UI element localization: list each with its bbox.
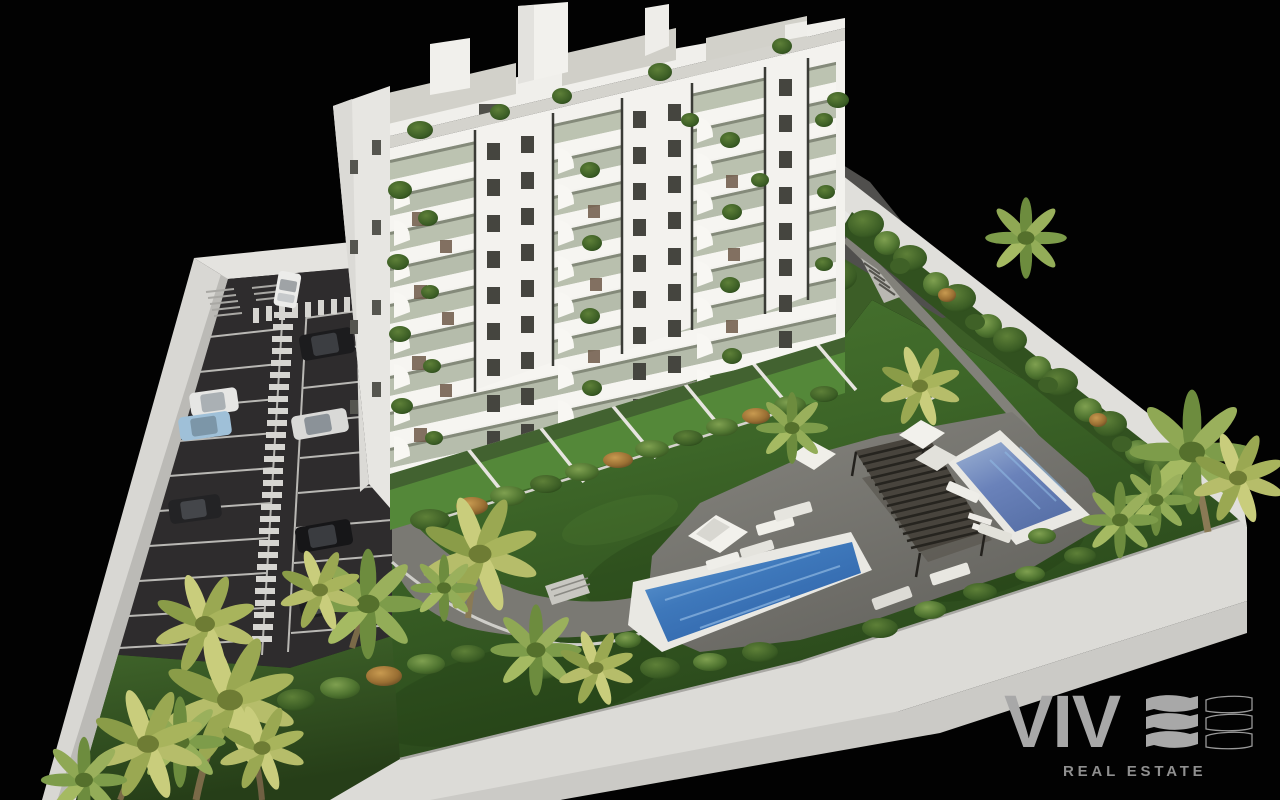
svg-text:REAL ESTATE: REAL ESTATE bbox=[1063, 763, 1206, 780]
svg-text:VIV: VIV bbox=[1004, 680, 1121, 763]
